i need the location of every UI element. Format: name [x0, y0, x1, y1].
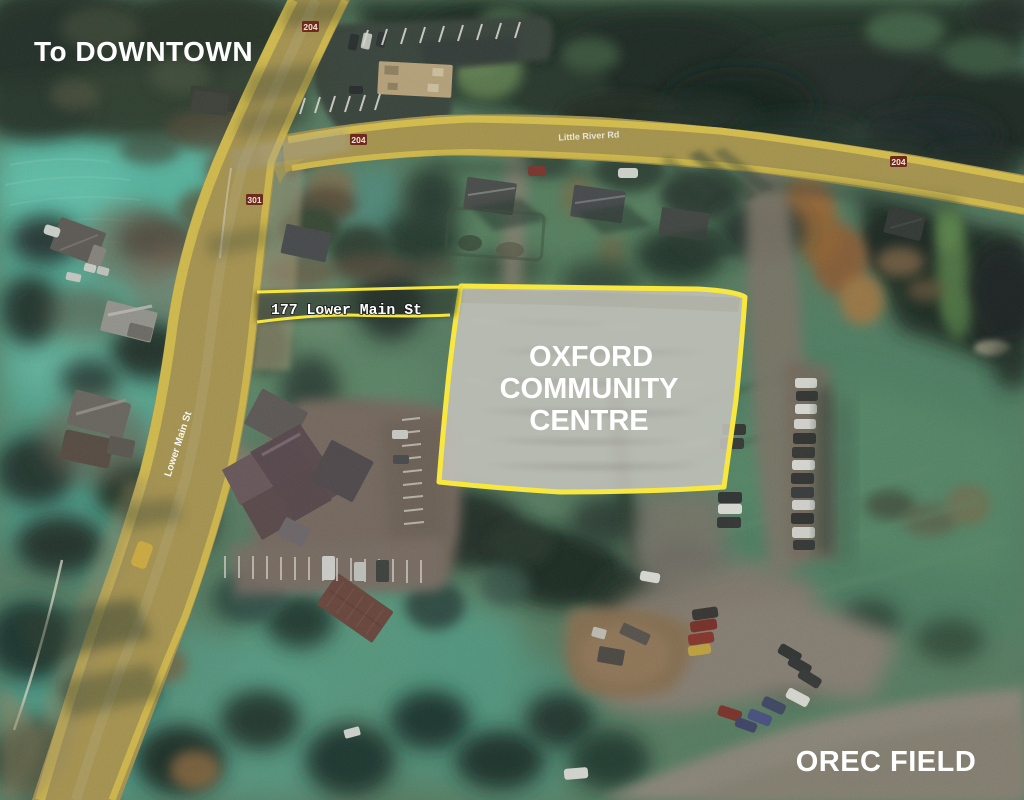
svg-text:204: 204: [351, 135, 365, 145]
svg-text:204: 204: [891, 157, 905, 167]
svg-text:301: 301: [247, 195, 261, 205]
svg-text:COMMUNITY: COMMUNITY: [500, 373, 679, 405]
svg-text:To DOWNTOWN: To DOWNTOWN: [34, 36, 253, 67]
svg-text:OREC FIELD: OREC FIELD: [796, 746, 977, 778]
svg-text:OXFORD: OXFORD: [529, 341, 653, 373]
svg-text:CENTRE: CENTRE: [529, 405, 648, 437]
svg-text:177 Lower Main St: 177 Lower Main St: [271, 303, 422, 319]
svg-text:204: 204: [303, 22, 317, 32]
